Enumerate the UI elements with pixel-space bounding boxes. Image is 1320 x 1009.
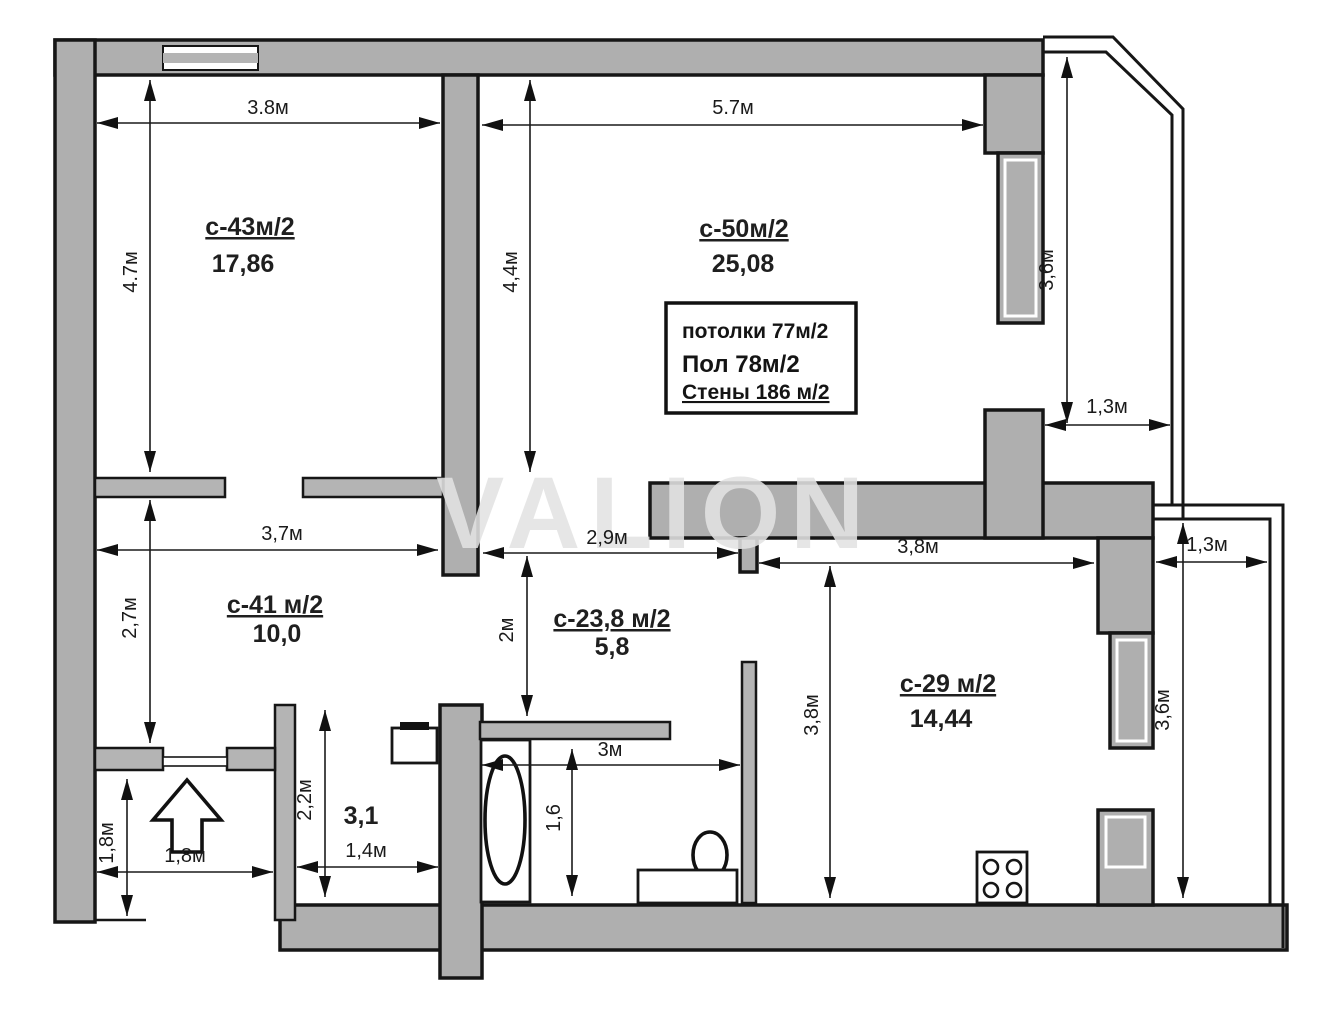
wc-area: 3,1 bbox=[344, 802, 379, 830]
dim-label-wc-w: 1,4м bbox=[345, 840, 387, 862]
dim-label-room2-w: 5.7м bbox=[712, 97, 754, 119]
wall-left bbox=[55, 40, 95, 922]
room3-area: 10,0 bbox=[253, 620, 302, 648]
wall-bath-right bbox=[742, 662, 756, 903]
wall-bottom bbox=[280, 905, 1287, 950]
wall-entry-top-b bbox=[227, 748, 275, 770]
wall-room2-right-bottom bbox=[985, 410, 1043, 538]
dim-label-balc-bot-h: 3,6м bbox=[1152, 689, 1174, 731]
room1-area: 17,86 bbox=[212, 250, 275, 278]
balcony-top-outer bbox=[1043, 37, 1183, 520]
floor-plan-page: VALION 3.8м 4.7м 5.7м 4,4м 3,6м 1,3м 3,7… bbox=[0, 0, 1320, 1009]
window-room2-balcony bbox=[998, 153, 1043, 323]
window-top bbox=[163, 46, 258, 70]
dim-label-bath-w: 3м bbox=[598, 739, 623, 761]
hall-name: с-23,8 м/2 bbox=[553, 605, 670, 633]
kitchen-area: 14,44 bbox=[910, 705, 973, 733]
entry-door-threshold bbox=[163, 757, 227, 766]
balcony-top-inner bbox=[1043, 52, 1172, 505]
dim-label-balc-bot-w: 1,3м bbox=[1186, 534, 1228, 556]
wall-mid-left-b bbox=[303, 478, 443, 497]
room2-area: 25,08 bbox=[712, 250, 775, 278]
wall-wc-left bbox=[275, 705, 295, 920]
floor-plan-svg: VALION 3.8м 4.7м 5.7м 4,4м 3,6м 1,3м 3,7… bbox=[0, 0, 1320, 1009]
wall-kitchen-right-bottom bbox=[1098, 810, 1153, 905]
dim-label-hall-w: 2,9м bbox=[586, 527, 628, 549]
info-floor: Пол 78м/2 bbox=[682, 351, 800, 378]
entry-arrow-icon bbox=[153, 780, 221, 852]
wall-entry-top-a bbox=[95, 748, 163, 770]
wall-mid-left-a bbox=[95, 478, 225, 497]
dim-label-room3-w: 3,7м bbox=[261, 523, 303, 545]
dim-label-room1-w: 3.8м bbox=[247, 97, 289, 119]
toilet-icon bbox=[638, 832, 737, 903]
dim-label-room1-h: 4.7м bbox=[120, 251, 142, 293]
window-kitchen-balcony bbox=[1110, 633, 1153, 748]
dim-label-kitchen-h: 3,8м bbox=[801, 694, 823, 736]
wall-bath-left bbox=[440, 705, 482, 978]
dim-label-room2-h: 4,4м bbox=[500, 251, 522, 293]
stove-icon bbox=[977, 852, 1027, 903]
room2-name: с-50м/2 bbox=[699, 215, 788, 243]
dim-label-bath-h: 1,6 bbox=[543, 804, 565, 832]
dim-label-wc-h: 2,2м bbox=[294, 779, 316, 821]
dim-label-entry-w: 1,8м bbox=[164, 845, 206, 867]
hall-area: 5,8 bbox=[595, 633, 630, 661]
kitchen-name: с-29 м/2 bbox=[900, 670, 996, 698]
info-walls: Стены 186 м/2 bbox=[682, 381, 830, 404]
info-box: потолки 77м/2 Пол 78м/2 Стены 186 м/2 bbox=[666, 303, 856, 413]
dim-label-entry-h: 1,8м bbox=[96, 822, 118, 864]
sink-icon bbox=[392, 722, 437, 763]
room3-name: с-41 м/2 bbox=[227, 591, 323, 619]
dim-label-kitchen-w: 3,8м bbox=[897, 536, 939, 558]
wall-room2-right-top bbox=[985, 75, 1043, 153]
dim-label-balc-top-h: 3,6м bbox=[1036, 249, 1058, 291]
dim-label-hall-h: 2м bbox=[496, 618, 518, 643]
wall-kitchen-right-top bbox=[1098, 538, 1153, 633]
dim-label-room3-h: 2,7м bbox=[119, 597, 141, 639]
info-ceilings: потолки 77м/2 bbox=[682, 320, 828, 343]
dim-label-balc-top-w: 1,3м bbox=[1086, 396, 1128, 418]
wall-bath-top bbox=[480, 722, 670, 739]
room1-name: с-43м/2 bbox=[205, 213, 294, 241]
